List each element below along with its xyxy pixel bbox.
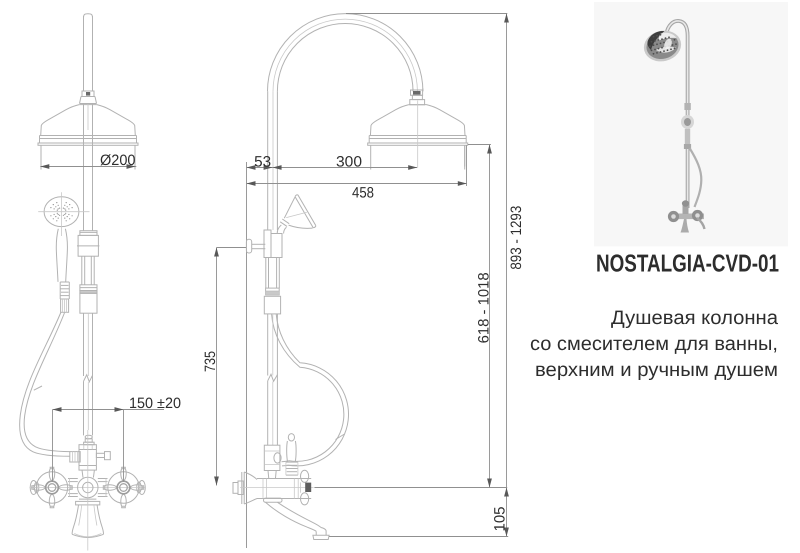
svg-text:300: 300 <box>336 153 362 170</box>
svg-text:53: 53 <box>254 153 271 170</box>
svg-text:105: 105 <box>492 507 509 532</box>
svg-text:893 - 1293: 893 - 1293 <box>508 206 525 270</box>
svg-text:со смесителем для ванны,: со смесителем для ванны, <box>530 333 778 355</box>
svg-text:верхним и ручным душем: верхним и ручным душем <box>535 359 778 381</box>
svg-text:735: 735 <box>202 351 219 372</box>
svg-text:150 ±20: 150 ±20 <box>129 395 181 412</box>
svg-text:458: 458 <box>352 185 374 202</box>
svg-text:Ø200: Ø200 <box>100 152 136 169</box>
svg-text:NOSTALGIA-CVD-01: NOSTALGIA-CVD-01 <box>596 250 779 277</box>
svg-text:618 - 1018: 618 - 1018 <box>475 272 492 343</box>
svg-text:Душевая колонна: Душевая колонна <box>611 307 778 329</box>
